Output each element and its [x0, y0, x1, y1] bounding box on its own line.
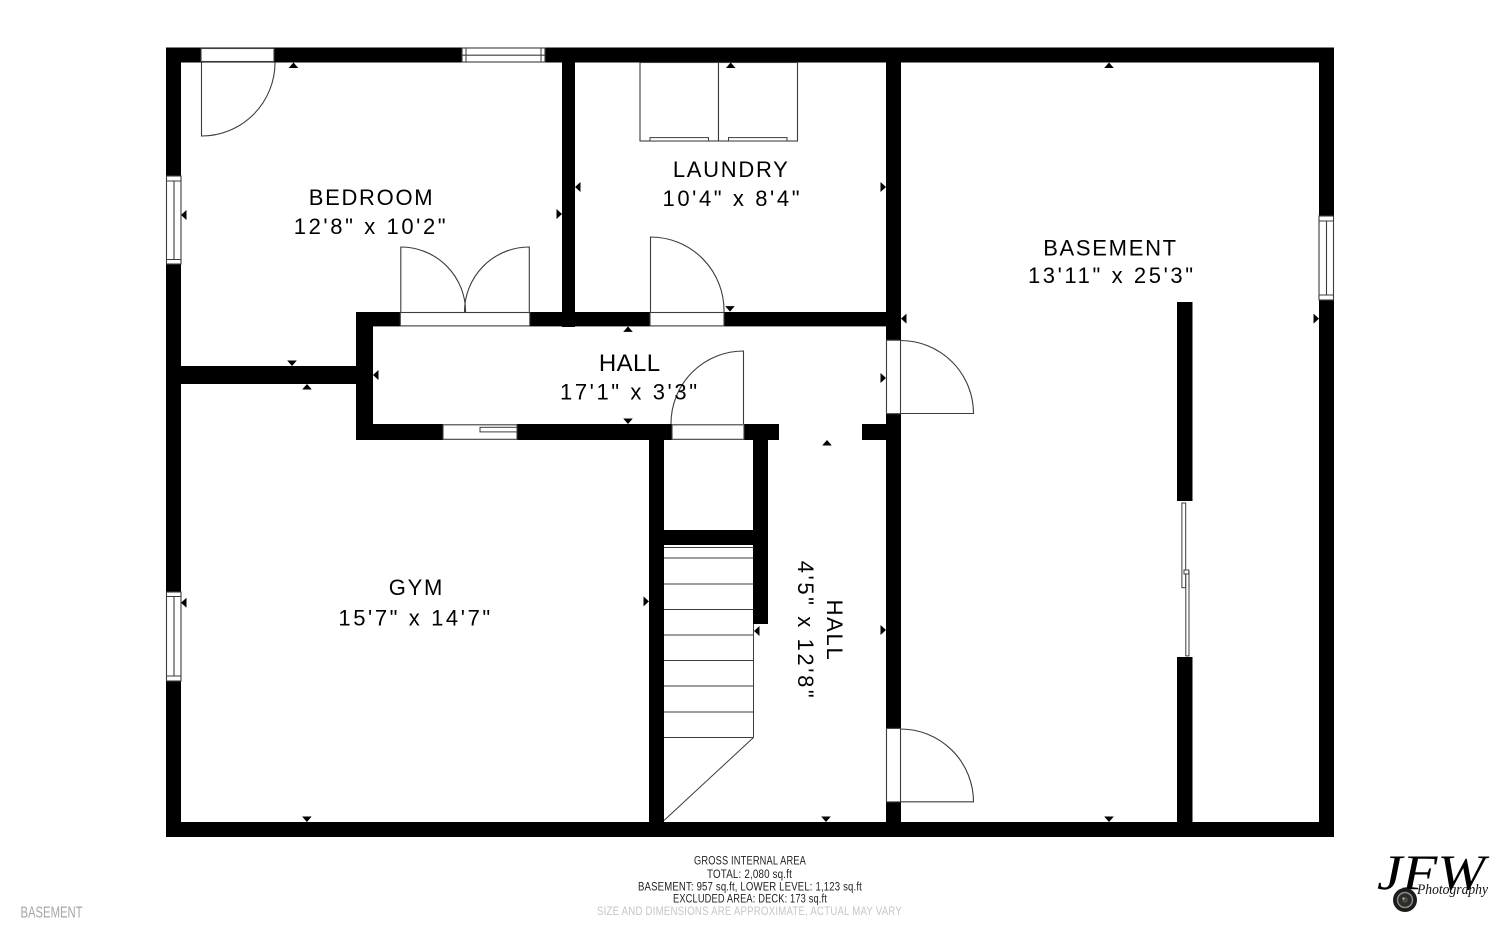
svg-text:BASEMENT: BASEMENT [21, 904, 83, 921]
svg-text:4'5" x 12'8": 4'5" x 12'8" [793, 561, 818, 701]
svg-text:HALL: HALL [599, 350, 661, 377]
svg-text:13'11" x 25'3": 13'11" x 25'3" [1028, 263, 1196, 288]
svg-text:17'1" x 3'3": 17'1" x 3'3" [560, 380, 700, 405]
svg-text:TOTAL: 2,080 sq.ft: TOTAL: 2,080 sq.ft [707, 869, 793, 881]
svg-text:BASEMENT: BASEMENT [1043, 235, 1178, 260]
svg-text:SIZE AND DIMENSIONS ARE APPROX: SIZE AND DIMENSIONS ARE APPROXIMATE, ACT… [597, 904, 902, 918]
svg-text:15'7" x 14'7": 15'7" x 14'7" [338, 606, 492, 631]
svg-text:BEDROOM: BEDROOM [309, 185, 435, 210]
svg-text:10'4" x 8'4": 10'4" x 8'4" [662, 186, 802, 211]
svg-text:12'8" x 10'2": 12'8" x 10'2" [294, 214, 448, 239]
svg-text:HALL: HALL [822, 600, 847, 662]
svg-text:GROSS INTERNAL AREA: GROSS INTERNAL AREA [694, 856, 806, 868]
svg-text:BASEMENT: 957 sq.ft, LOWER LEV: BASEMENT: 957 sq.ft, LOWER LEVEL: 1,123 … [638, 882, 862, 894]
svg-text:LAUNDRY: LAUNDRY [673, 157, 790, 182]
svg-text:Photography: Photography [1416, 882, 1488, 898]
svg-text:GYM: GYM [389, 575, 444, 600]
